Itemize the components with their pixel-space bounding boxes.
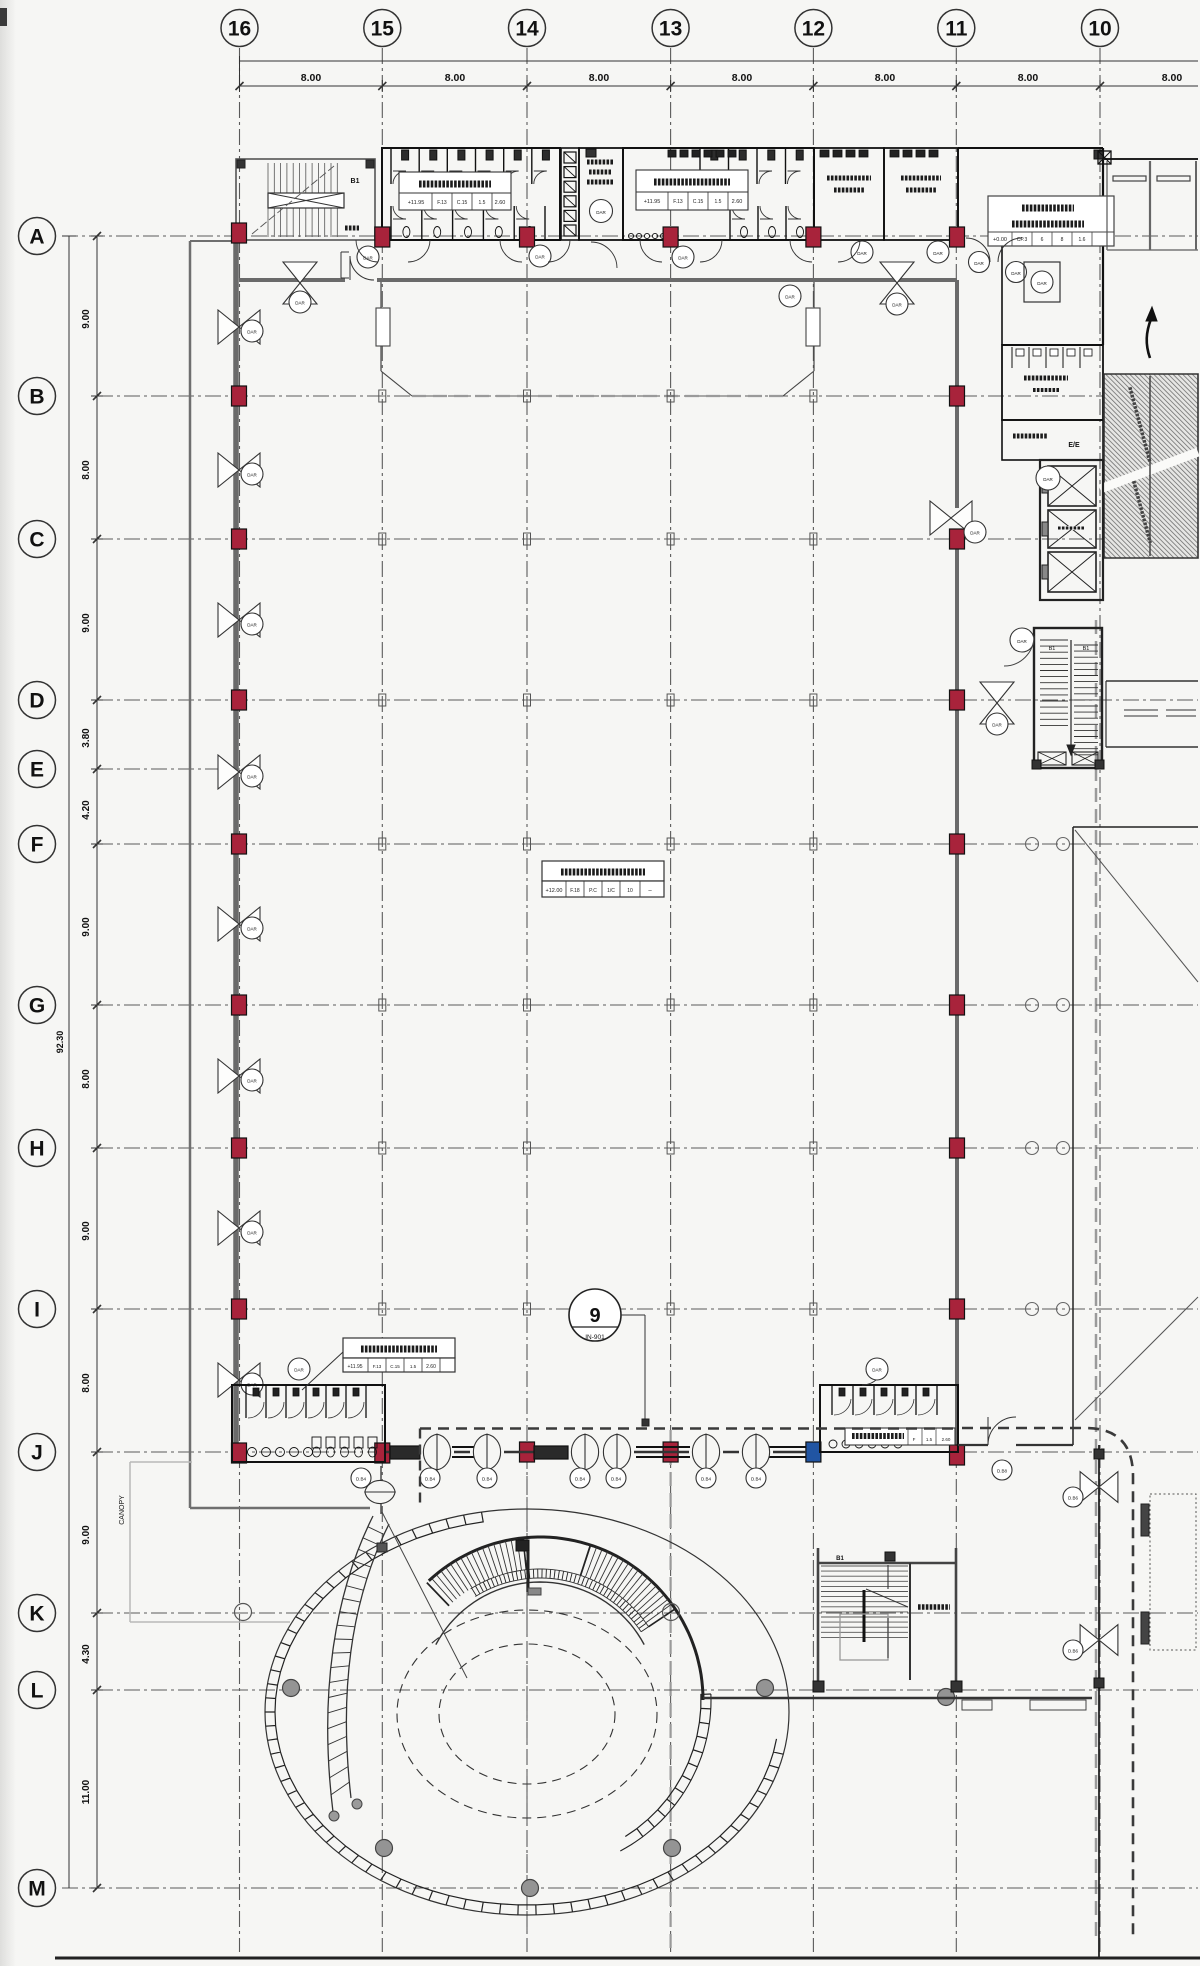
svg-text:DAR: DAR: [535, 255, 545, 260]
svg-text:8.00: 8.00: [81, 1069, 92, 1089]
svg-text:D.B4: D.B4: [611, 1477, 622, 1482]
svg-text:DAR: DAR: [933, 251, 943, 256]
svg-text:+0.00: +0.00: [993, 237, 1007, 243]
svg-text:1/C: 1/C: [607, 888, 615, 894]
svg-text:D: D: [29, 690, 44, 713]
svg-text:2.60: 2.60: [495, 200, 506, 206]
svg-text:8.00: 8.00: [732, 72, 753, 84]
svg-text:DAR: DAR: [1037, 281, 1047, 286]
svg-text:2.60: 2.60: [942, 1437, 951, 1442]
svg-text:8.00: 8.00: [81, 1373, 92, 1393]
svg-text:DAR: DAR: [596, 210, 606, 215]
svg-text:C.15: C.15: [693, 199, 704, 205]
svg-text:16: 16: [228, 18, 251, 41]
svg-text:DAR: DAR: [974, 261, 984, 266]
svg-text:H: H: [29, 1138, 44, 1161]
svg-text:8.00: 8.00: [1018, 72, 1039, 84]
svg-text:G: G: [29, 995, 45, 1018]
svg-text:9.00: 9.00: [81, 613, 92, 633]
svg-text:DAR: DAR: [247, 1231, 257, 1236]
svg-text:+12.00: +12.00: [546, 888, 563, 894]
svg-text:9.00: 9.00: [81, 1525, 92, 1545]
svg-text:B1: B1: [1049, 646, 1056, 652]
svg-text:P.C: P.C: [589, 888, 597, 894]
svg-text:F.13: F.13: [673, 199, 683, 205]
svg-text:DAR: DAR: [247, 1079, 257, 1084]
svg-text:9.00: 9.00: [81, 917, 92, 937]
svg-text:B1: B1: [1083, 646, 1090, 652]
svg-text:DAR: DAR: [295, 301, 305, 306]
svg-text:L: L: [31, 1680, 44, 1703]
svg-text:1.5: 1.5: [926, 1437, 933, 1442]
svg-text:DAR: DAR: [247, 330, 257, 335]
svg-text:F: F: [31, 834, 44, 857]
svg-text:B1: B1: [836, 1556, 844, 1562]
svg-text:DAR: DAR: [892, 303, 902, 308]
svg-text:DAR: DAR: [872, 1368, 882, 1373]
svg-text:9.00: 9.00: [81, 1221, 92, 1241]
svg-text:10: 10: [1088, 18, 1111, 41]
svg-text:C.15: C.15: [390, 1364, 400, 1369]
svg-text:DAR: DAR: [970, 531, 980, 536]
svg-text:F.18: F.18: [570, 888, 580, 894]
svg-text:DAR: DAR: [1011, 271, 1021, 276]
svg-text:F.13: F.13: [437, 200, 447, 206]
svg-text:+11.95: +11.95: [644, 199, 661, 205]
svg-text:DAR: DAR: [785, 295, 795, 300]
svg-text:1.5: 1.5: [479, 200, 486, 206]
svg-text:D.B4: D.B4: [751, 1477, 762, 1482]
svg-text:8.00: 8.00: [445, 72, 466, 84]
svg-text:I: I: [34, 1299, 40, 1322]
svg-text:B1: B1: [351, 178, 360, 185]
svg-text:14: 14: [515, 18, 539, 41]
svg-text:D.B4: D.B4: [425, 1477, 436, 1482]
svg-text:D.B4: D.B4: [701, 1477, 712, 1482]
svg-text:92.30: 92.30: [55, 1031, 65, 1054]
svg-text:8.00: 8.00: [301, 72, 322, 84]
svg-text:3.80: 3.80: [81, 728, 92, 748]
svg-text:1.5: 1.5: [410, 1364, 417, 1369]
svg-text:8.00: 8.00: [1162, 72, 1183, 84]
svg-text:8.00: 8.00: [81, 460, 92, 480]
svg-text:DAR: DAR: [1017, 639, 1027, 644]
svg-text:C: C: [29, 529, 44, 552]
svg-text:DAR: DAR: [247, 473, 257, 478]
svg-text:F.13: F.13: [373, 1364, 382, 1369]
svg-text:D.B6: D.B6: [1068, 1649, 1079, 1654]
svg-text:M: M: [28, 1878, 46, 1901]
svg-text:11: 11: [945, 18, 968, 41]
svg-text:A: A: [29, 226, 44, 249]
svg-text:DAR: DAR: [1043, 477, 1053, 482]
svg-text:D.B4: D.B4: [575, 1477, 586, 1482]
svg-text:+11.95: +11.95: [347, 1364, 362, 1370]
svg-text:DAR: DAR: [678, 256, 688, 261]
svg-text:10: 10: [627, 888, 633, 894]
svg-text:DAR: DAR: [247, 927, 257, 932]
svg-text:J: J: [31, 1442, 43, 1465]
svg-text:DAR: DAR: [247, 775, 257, 780]
svg-text:2.60: 2.60: [732, 199, 743, 205]
svg-text:K: K: [29, 1603, 44, 1626]
svg-text:D.B8: D.B8: [997, 1469, 1008, 1474]
svg-text:D.B4: D.B4: [482, 1477, 493, 1482]
svg-text:1.6: 1.6: [1079, 237, 1086, 243]
svg-text:1.5: 1.5: [715, 199, 722, 205]
svg-text:15: 15: [371, 18, 395, 41]
svg-text:8.00: 8.00: [875, 72, 896, 84]
svg-text:DAR: DAR: [294, 1368, 304, 1373]
svg-text:C.15: C.15: [457, 200, 468, 206]
svg-text:CANOPY: CANOPY: [119, 1495, 126, 1525]
svg-text:11.00: 11.00: [81, 1779, 92, 1804]
svg-text:4.20: 4.20: [81, 800, 92, 820]
svg-text:IN-901: IN-901: [585, 1334, 605, 1341]
svg-text:9.00: 9.00: [81, 309, 92, 329]
svg-text:B: B: [29, 386, 44, 409]
svg-text:13: 13: [659, 18, 682, 41]
svg-text:D.B4: D.B4: [356, 1477, 367, 1482]
svg-text:DAR: DAR: [857, 251, 867, 256]
svg-text:E/E: E/E: [1068, 442, 1080, 449]
svg-text:9: 9: [589, 1305, 600, 1327]
svg-text:4.30: 4.30: [81, 1644, 92, 1664]
svg-text:+11.95: +11.95: [408, 200, 425, 206]
svg-text:F: F: [913, 1437, 916, 1442]
svg-text:DAR: DAR: [992, 723, 1002, 728]
svg-text:8: 8: [1061, 237, 1064, 243]
svg-text:2.60: 2.60: [426, 1364, 436, 1370]
svg-text:E: E: [30, 759, 44, 782]
svg-text:6: 6: [1041, 237, 1044, 243]
svg-text:12: 12: [802, 18, 825, 41]
svg-text:D.B6: D.B6: [1068, 1496, 1079, 1501]
svg-text:8.00: 8.00: [589, 72, 610, 84]
svg-text:DAR: DAR: [247, 623, 257, 628]
